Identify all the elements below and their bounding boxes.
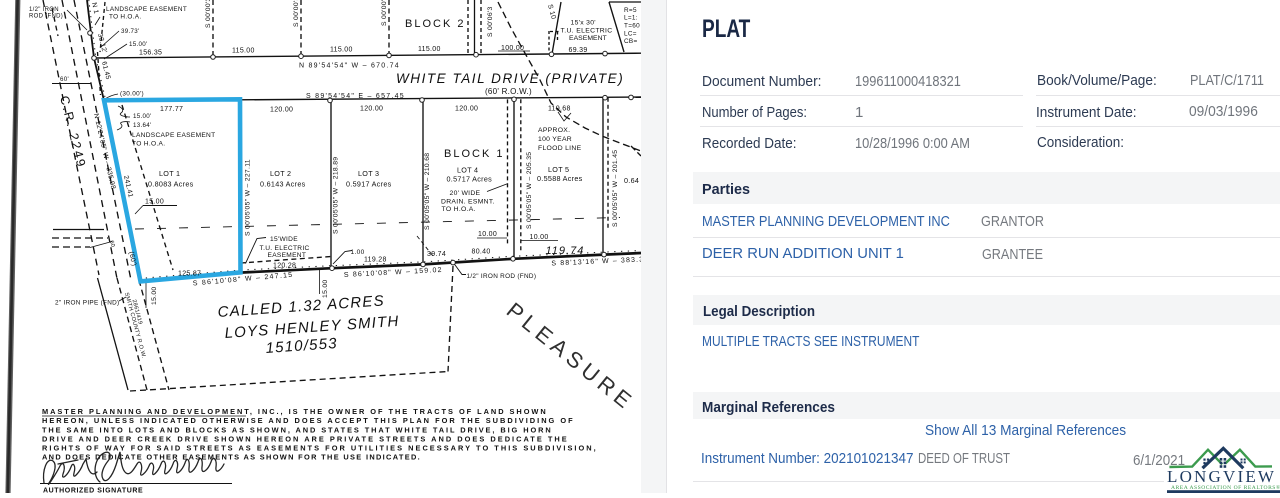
svg-text:S 00'05'05" W – 210.68: S 00'05'05" W – 210.68 [424,153,431,230]
svg-text:LOT 5: LOT 5 [548,165,569,174]
svg-text:S 00'05'05" W – 205.35: S 00'05'05" W – 205.35 [526,152,533,229]
svg-text:T.U. ELECTRIC: T.U. ELECTRIC [561,28,613,35]
svg-text:PLEASURE: PLEASURE [502,297,640,415]
svg-text:2" IRON PIPE (FND): 2" IRON PIPE (FND) [55,300,119,307]
svg-text:1/2" IRON: 1/2" IRON [29,7,59,13]
svg-text:AREA ASSOCIATION OF REALTORS®: AREA ASSOCIATION OF REALTORS® [1171,484,1280,491]
svg-text:119.68: 119.68 [548,106,571,113]
svg-text:15.00': 15.00' [133,113,151,120]
svg-text:39.73': 39.73' [121,28,139,35]
svg-text:125.87: 125.87 [178,271,201,278]
svg-text:10.00: 10.00 [530,234,549,241]
svg-text:LC=: LC= [624,31,637,38]
svg-text:1/2" IRON ROD (FND): 1/2" IRON ROD (FND) [467,273,537,280]
svg-text:S 10: S 10 [546,4,557,20]
svg-text:15'x 30': 15'x 30' [571,20,596,27]
svg-text:LANDSCAPE EASEMENT: LANDSCAPE EASEMENT [106,6,187,13]
svg-text:DRAIN. ESMNT.: DRAIN. ESMNT. [441,199,495,206]
svg-text:120.00: 120.00 [270,107,293,114]
svg-text:EASEMENT: EASEMENT [569,35,607,42]
svg-text:1510/553: 1510/553 [265,335,338,357]
svg-text:S 89'54'54" E – 657.45: S 89'54'54" E – 657.45 [306,93,404,100]
svg-text:TO H.O.A.: TO H.O.A. [109,14,141,21]
svg-text:APPROX.: APPROX. [538,127,570,134]
svg-text:15.00: 15.00 [322,279,329,298]
svg-text:20' WIDE: 20' WIDE [450,190,481,197]
svg-text:S 00'05'05" W – 227.11: S 00'05'05" W – 227.11 [245,159,252,236]
svg-text:LOT 4: LOT 4 [457,166,478,175]
svg-text:69.39: 69.39 [569,47,588,54]
svg-text:S 00'06'3: S 00'06'3 [487,6,494,37]
svg-text:0.5717 Acres: 0.5717 Acres [447,175,493,184]
svg-text:TO H.O.A.: TO H.O.A. [132,141,165,148]
svg-text:WHITE TAIL DRIVE (PRIVATE): WHITE TAIL DRIVE (PRIVATE) [396,71,623,86]
svg-text:100 YEAR: 100 YEAR [538,136,572,143]
svg-text:S 88'13'16" W – 383.3: S 88'13'16" W – 383.3 [551,256,641,267]
svg-text:15.00: 15.00 [151,286,158,305]
svg-text:60: 60 [108,240,116,248]
svg-text:33.12': 33.12' [96,33,108,54]
svg-text:BLOCK 2: BLOCK 2 [405,18,465,30]
svg-text:0.5917 Acres: 0.5917 Acres [346,180,392,189]
svg-text:LOT 2: LOT 2 [270,169,291,178]
svg-text:100.00: 100.00 [501,45,524,52]
svg-text:115.00: 115.00 [418,46,441,53]
svg-text:LOT 1: LOT 1 [159,169,180,178]
svg-text:120.00: 120.00 [360,106,383,113]
svg-text:61.45: 61.45 [100,61,111,81]
svg-text:39.74: 39.74 [427,251,446,258]
svg-text:BLOCK 1: BLOCK 1 [444,148,504,160]
svg-text:CB=: CB= [624,38,638,45]
svg-text:RIGHTS OF WAY FOR SAID STREETS: RIGHTS OF WAY FOR SAID STREETS AS EASEME… [42,444,596,453]
svg-text:15'WIDE: 15'WIDE [270,236,298,243]
svg-text:L=1:: L=1: [624,15,638,22]
svg-text:(60' R.O.W.): (60' R.O.W.) [485,87,532,96]
svg-text:LANDSCAPE EASEMENT: LANDSCAPE EASEMENT [132,132,215,139]
svg-text:T.U. ELECTRIC: T.U. ELECTRIC [260,245,310,252]
svg-text:S 00'05'05" W – 201.45: S 00'05'05" W – 201.45 [612,150,619,227]
svg-text:115.00: 115.00 [330,47,353,54]
svg-text:AUTHORIZED SIGNATURE: AUTHORIZED SIGNATURE [43,488,143,494]
svg-text:156.35: 156.35 [139,50,162,57]
svg-text:(30.00'): (30.00') [120,91,144,98]
svg-text:ROD (FND): ROD (FND) [29,14,63,20]
svg-text:T=60: T=60 [624,23,640,30]
svg-text:120.28: 120.28 [273,263,296,270]
svg-text:0.6143 Acres: 0.6143 Acres [260,180,306,189]
svg-text:15.00': 15.00' [129,41,147,48]
svg-text:LOT 3: LOT 3 [358,169,379,178]
svg-text:80.40: 80.40 [472,249,491,256]
svg-text:119.74: 119.74 [546,245,585,257]
svg-text:HEREON, UNLESS INDICATED OTHER: HEREON, UNLESS INDICATED OTHERWISE AND D… [42,416,573,425]
svg-text:LONGVIEW: LONGVIEW [1167,467,1276,486]
svg-text:FLOOD LINE: FLOOD LINE [538,145,582,152]
svg-text:13.64': 13.64' [133,122,151,129]
svg-text:177.77: 177.77 [160,106,183,113]
svg-text:0.5588 Acres: 0.5588 Acres [537,174,583,183]
svg-text:115.00: 115.00 [232,48,255,55]
svg-text:0.64: 0.64 [624,176,639,185]
svg-text:THE SAME INTO LOTS AND BLOCKS: THE SAME INTO LOTS AND BLOCKS AS SHOWN, … [42,425,551,434]
svg-text:S 00'00'30" E: S 00'00'30" E [381,0,388,26]
svg-text:MASTER PLANNING AND DEVELOPMEN: MASTER PLANNING AND DEVELOPMENT, INC., I… [42,407,546,416]
svg-text:R=5: R=5 [624,7,637,14]
svg-text:C.R. 2249: C.R. 2249 [57,94,89,169]
svg-text:60': 60' [60,76,69,83]
svg-text:0.8083 Acres: 0.8083 Acres [148,180,194,189]
svg-text:10.00: 10.00 [478,231,497,238]
svg-text:S 00'00'30" E: S 00'00'30" E [293,0,300,27]
svg-text:S 00'05'05" W – 218.89: S 00'05'05" W – 218.89 [333,157,340,234]
svg-text:EASEMENT: EASEMENT [268,252,307,259]
svg-text:15.00: 15.00 [145,199,164,206]
svg-text:119.28: 119.28 [364,257,387,264]
svg-text:S 86'10'08" W – 159.02: S 86'10'08" W – 159.02 [344,267,442,279]
svg-text:TO H.O.A.: TO H.O.A. [442,206,476,213]
svg-text:1.00: 1.00 [351,249,365,256]
svg-text:120.00: 120.00 [455,106,478,113]
svg-text:DRIVE AND DEER CREEK DRIVE SHO: DRIVE AND DEER CREEK DRIVE SHOWN HEREON … [42,434,567,443]
svg-text:N 1: N 1 [90,2,99,15]
svg-text:N 89'54'54" W – 670.74: N 89'54'54" W – 670.74 [299,63,399,70]
svg-text:S 00'00'30" E: S 00'00'30" E [205,0,212,28]
